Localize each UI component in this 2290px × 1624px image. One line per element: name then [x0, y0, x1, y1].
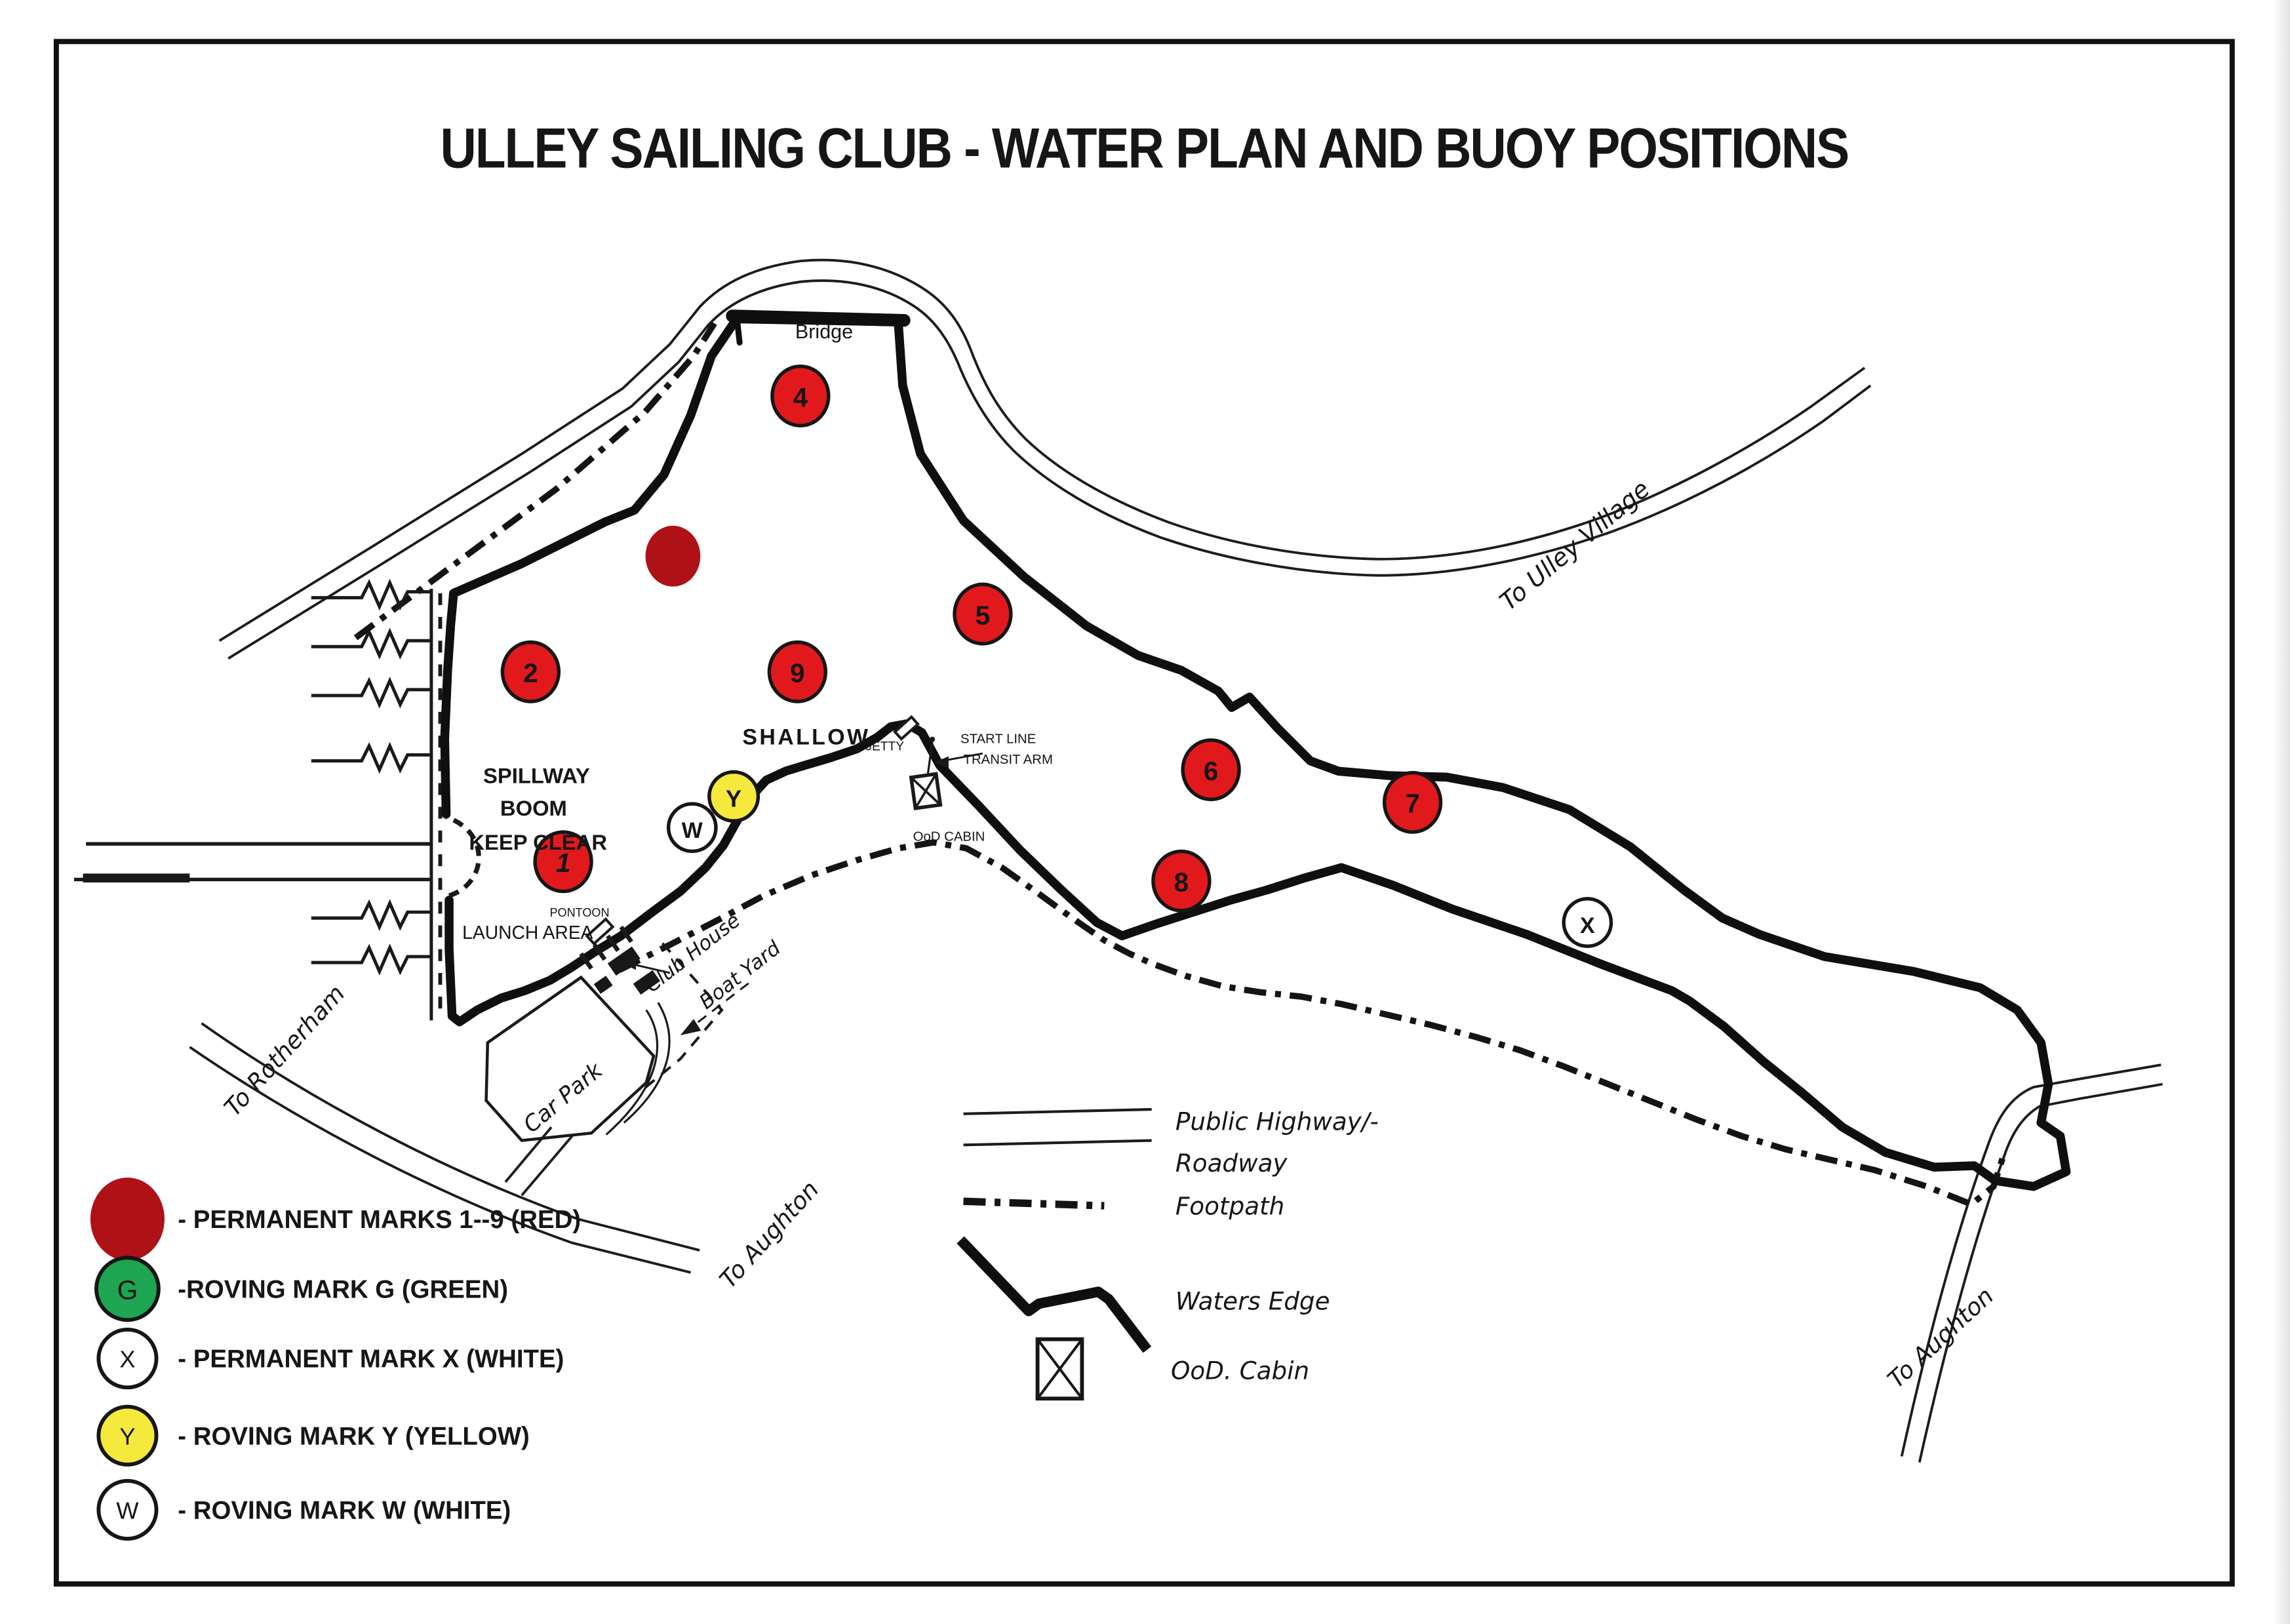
- legend-label-footpath: Footpath: [1175, 1192, 1284, 1221]
- mark-letter: W: [682, 818, 703, 843]
- bridge-deck: [732, 316, 904, 321]
- permanent-mark-6: 6: [1183, 740, 1239, 799]
- label-ood-cabin: OoD CABIN: [913, 830, 985, 844]
- label-transit-arm: TRANSIT ARM: [964, 753, 1053, 767]
- legend-label-waters-edge: Waters Edge: [1175, 1286, 1330, 1315]
- legend-ood-cabin-symbol: [1038, 1339, 1082, 1398]
- label-spillway: SPILLWAY: [483, 763, 590, 787]
- mark-number: 4: [793, 382, 808, 412]
- legend-label-roving-y: - ROVING MARK Y (YELLOW): [178, 1422, 530, 1450]
- label-to-ulley-village: To Ulley Village: [1494, 474, 1655, 616]
- bridge-abutment: [737, 316, 740, 343]
- label-to-rotherham: To Rotherham: [218, 980, 350, 1122]
- ood-cabin-symbol-map: [911, 774, 941, 808]
- label-to-aughton-west: To Aughton: [714, 1176, 824, 1294]
- legend-letter-g: G: [117, 1275, 138, 1305]
- roving-mark-w: W: [669, 804, 716, 851]
- label-start-line: START LINE: [960, 732, 1036, 746]
- water-plan-map: ULLEY SAILING CLUB - WATER PLAN AND BUOY…: [0, 0, 2290, 1624]
- mark-number: 7: [1405, 789, 1420, 819]
- legend-marks: - PERMANENT MARKS 1--9 (RED) G -ROVING M…: [90, 1178, 581, 1539]
- permanent-mark-5: 5: [955, 584, 1011, 643]
- label-shallow: SHALLOW: [742, 725, 870, 750]
- start-line-pole: [930, 737, 935, 742]
- mark-letter: X: [1580, 913, 1595, 938]
- waters-edge-outline: [444, 319, 2066, 1186]
- car-park-outline: [486, 978, 654, 1141]
- mark-number: 6: [1204, 756, 1219, 786]
- roving-mark-y: Y: [709, 772, 759, 821]
- legend-red-disc: [90, 1178, 165, 1261]
- page-title: ULLEY SAILING CLUB - WATER PLAN AND BUOY…: [440, 117, 1848, 180]
- permanent-mark-8: 8: [1153, 851, 1210, 910]
- permanent-mark-unnumbered: [646, 526, 701, 587]
- label-car-park: Car Park: [519, 1057, 608, 1138]
- scan-edge-shadow: [2273, 0, 2290, 1624]
- legend-label-roving-g: -ROVING MARK G (GREEN): [178, 1275, 508, 1303]
- label-pontoon: PONTOON: [549, 906, 609, 919]
- mark-number: 8: [1174, 867, 1189, 898]
- building-block: [594, 976, 613, 994]
- dam-zigzag-ticks: [311, 583, 431, 972]
- car-park-lane: [606, 1002, 669, 1134]
- label-jetty: JETTY: [865, 740, 904, 754]
- legend-label-permanent-red: - PERMANENT MARKS 1--9 (RED): [178, 1206, 581, 1234]
- label-boom: BOOM: [500, 796, 567, 820]
- permanent-mark-2: 2: [502, 642, 559, 701]
- legend-letter-y: Y: [119, 1423, 135, 1450]
- legend-letter-w: W: [116, 1497, 139, 1524]
- legend-cabin-cross: [1038, 1339, 1082, 1398]
- legend-letter-x: X: [119, 1346, 135, 1373]
- mark-number: 5: [976, 600, 991, 630]
- dam-structure: [74, 583, 479, 1020]
- legend-roadway-symbol: [964, 1109, 1152, 1145]
- legend-lines: Public Highway/- Roadway Footpath Waters…: [960, 1107, 1379, 1398]
- spillway-boom-arc: [446, 817, 479, 896]
- road-southeast-outer: [1902, 1065, 2162, 1456]
- mark-number: 9: [790, 658, 805, 688]
- label-launch-area: LAUNCH AREA: [462, 922, 593, 943]
- road-southeast-inner: [1920, 1084, 2163, 1463]
- mark-number: 2: [523, 658, 538, 688]
- scanned-water-plan-page: ULLEY SAILING CLUB - WATER PLAN AND BUOY…: [0, 0, 2290, 1624]
- jetty-structure: [895, 717, 918, 740]
- mark-letter: Y: [726, 785, 741, 812]
- permanent-mark-7: 7: [1385, 773, 1441, 832]
- legend-label-roadway-2: Roadway: [1175, 1149, 1288, 1178]
- legend-label-roving-w: - ROVING MARK W (WHITE): [178, 1496, 511, 1524]
- label-bridge: Bridge: [795, 321, 853, 343]
- legend-footpath-symbol: [964, 1201, 1105, 1206]
- legend-label-ood-cabin: OoD. Cabin: [1171, 1357, 1309, 1385]
- waters-edge: [444, 316, 2066, 1187]
- permanent-mark-x: X: [1564, 899, 1611, 946]
- legend-label-roadway-1: Public Highway/-: [1175, 1107, 1379, 1136]
- legend-waters-edge-symbol: [960, 1240, 1147, 1349]
- footpath-south: [620, 842, 2004, 1204]
- label-keep-clear: KEEP CLEAR: [469, 830, 607, 854]
- legend-label-permanent-x: - PERMANENT MARK X (WHITE): [178, 1345, 564, 1374]
- permanent-mark-9: 9: [769, 642, 825, 701]
- permanent-mark-4: 4: [772, 366, 829, 426]
